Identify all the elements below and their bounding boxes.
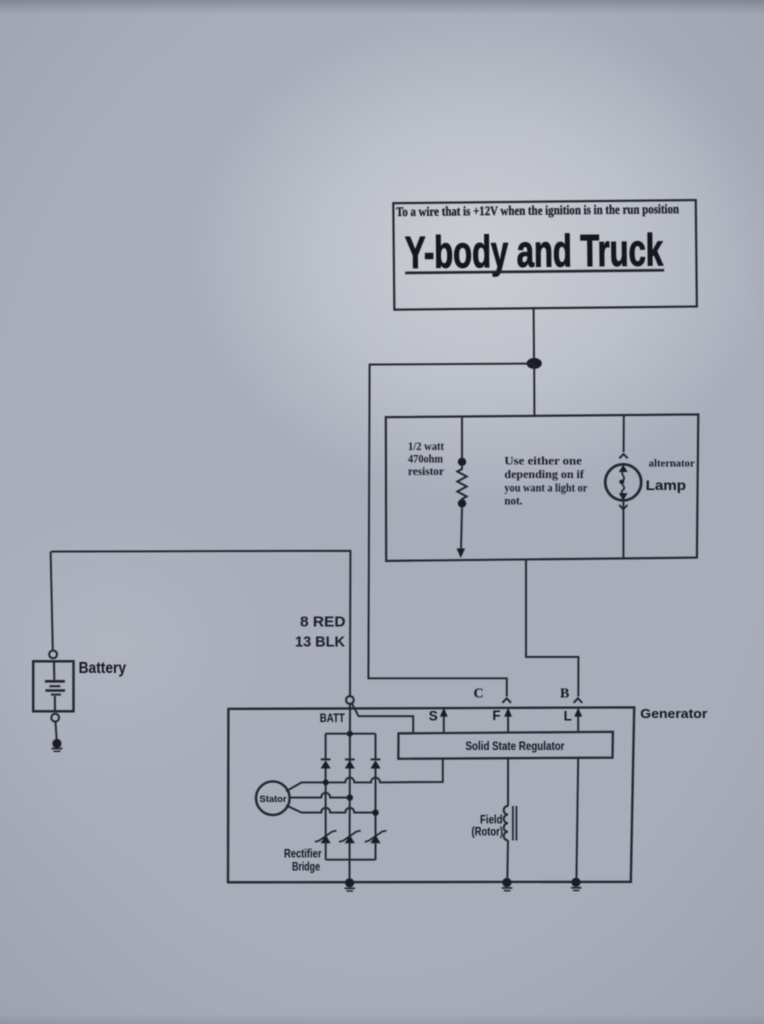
svg-text:To a wire that is +12V when th: To a wire that is +12V when the ignition… — [396, 201, 680, 219]
svg-text:Field: Field — [480, 814, 503, 826]
svg-text:you want a light or: you want a light or — [504, 481, 588, 495]
svg-text:Stator: Stator — [260, 794, 287, 805]
svg-text:Rectifier: Rectifier — [284, 847, 322, 861]
svg-text:1/2 watt: 1/2 watt — [408, 441, 444, 453]
svg-text:13 BLK: 13 BLK — [295, 635, 346, 651]
svg-text:L: L — [564, 709, 572, 724]
svg-text:not.: not. — [504, 494, 522, 508]
svg-text:Battery: Battery — [79, 660, 127, 677]
svg-text:Generator: Generator — [640, 706, 707, 721]
svg-text:BATT: BATT — [320, 713, 345, 725]
svg-text:depending on if: depending on if — [504, 467, 585, 481]
svg-text:S: S — [429, 708, 438, 723]
svg-text:(Rotor): (Rotor) — [472, 827, 504, 839]
svg-text:B: B — [560, 687, 569, 702]
svg-text:C: C — [474, 687, 484, 702]
svg-text:470ohm: 470ohm — [408, 454, 443, 466]
svg-text:Solid State Regulator: Solid State Regulator — [466, 741, 565, 753]
svg-text:resistor: resistor — [408, 466, 444, 478]
svg-text:F: F — [492, 708, 500, 723]
svg-text:8 RED: 8 RED — [300, 615, 346, 631]
svg-text:Bridge: Bridge — [292, 860, 320, 874]
svg-text:Use either one: Use either one — [504, 454, 582, 468]
svg-text:alternator: alternator — [649, 459, 696, 470]
svg-text:Lamp: Lamp — [646, 478, 687, 493]
